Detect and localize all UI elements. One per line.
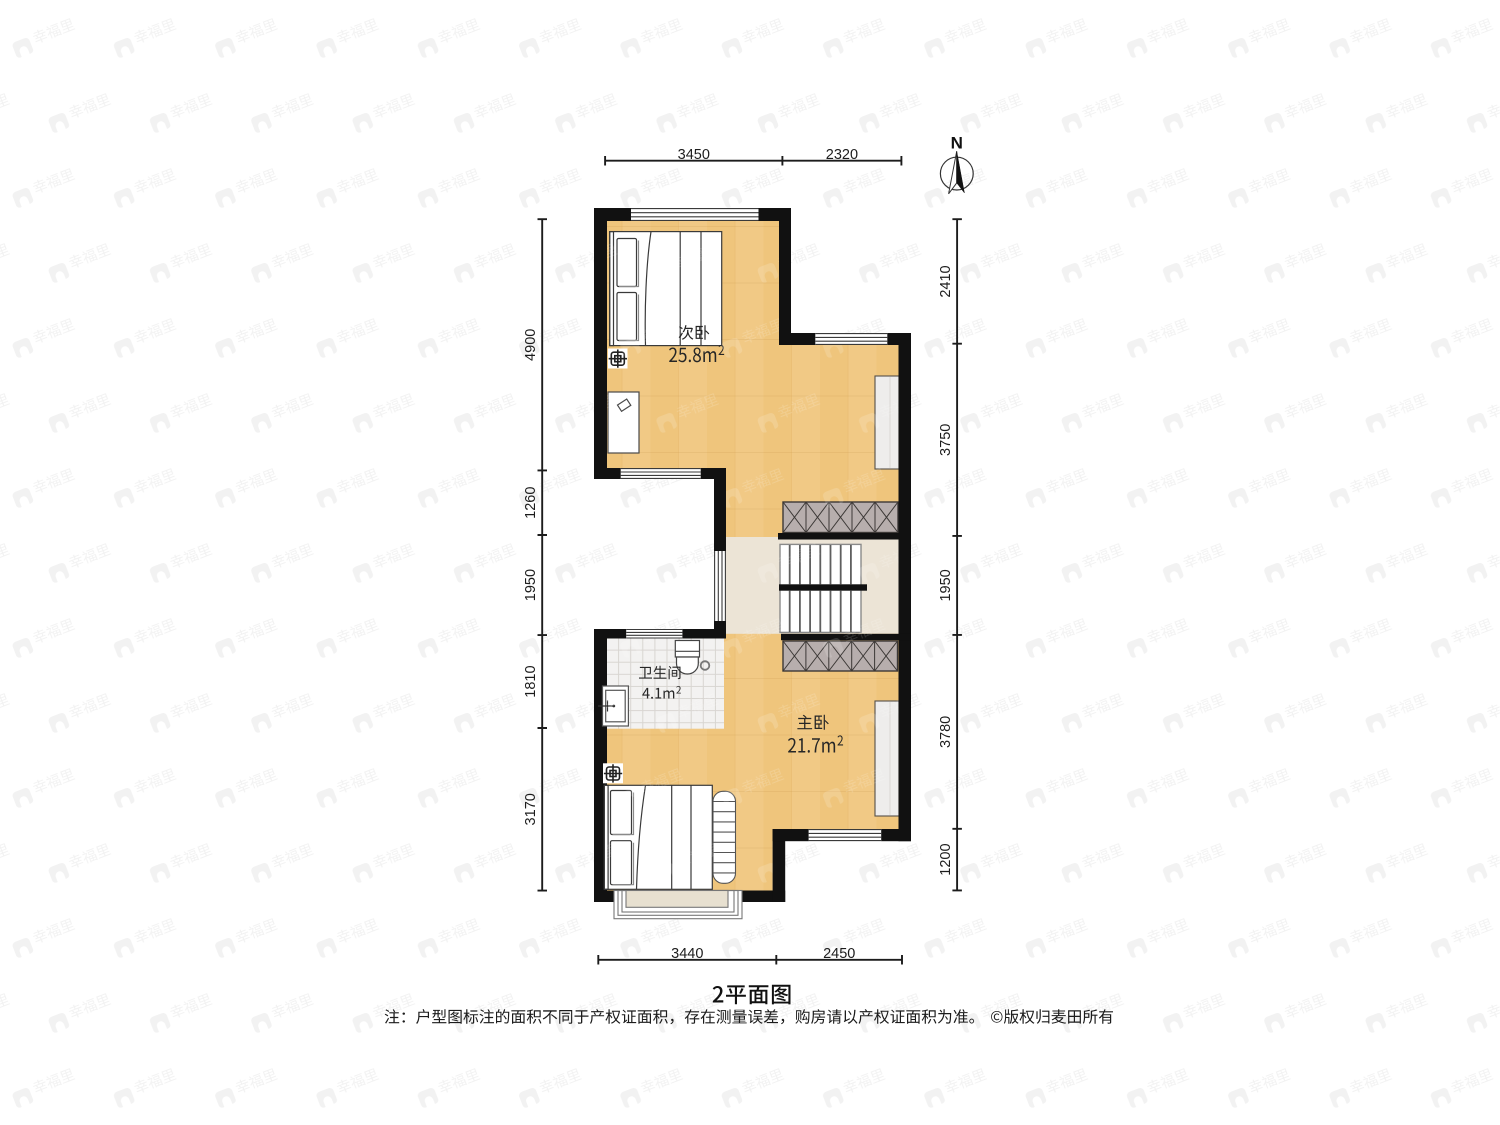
svg-text:1200: 1200 (938, 843, 954, 875)
svg-text:2450: 2450 (823, 946, 855, 962)
svg-text:2410: 2410 (938, 265, 954, 297)
svg-text:4900: 4900 (523, 329, 539, 361)
svg-text:N: N (951, 134, 963, 153)
svg-text:3170: 3170 (523, 793, 539, 825)
svg-text:3450: 3450 (678, 147, 710, 163)
svg-text:1810: 1810 (523, 665, 539, 697)
svg-text:1950: 1950 (938, 569, 954, 601)
svg-text:2320: 2320 (826, 147, 858, 163)
svg-text:3780: 3780 (938, 716, 954, 748)
svg-text:3440: 3440 (671, 946, 703, 962)
svg-text:3750: 3750 (938, 424, 954, 456)
svg-text:1260: 1260 (523, 487, 539, 519)
svg-text:1950: 1950 (523, 569, 539, 601)
